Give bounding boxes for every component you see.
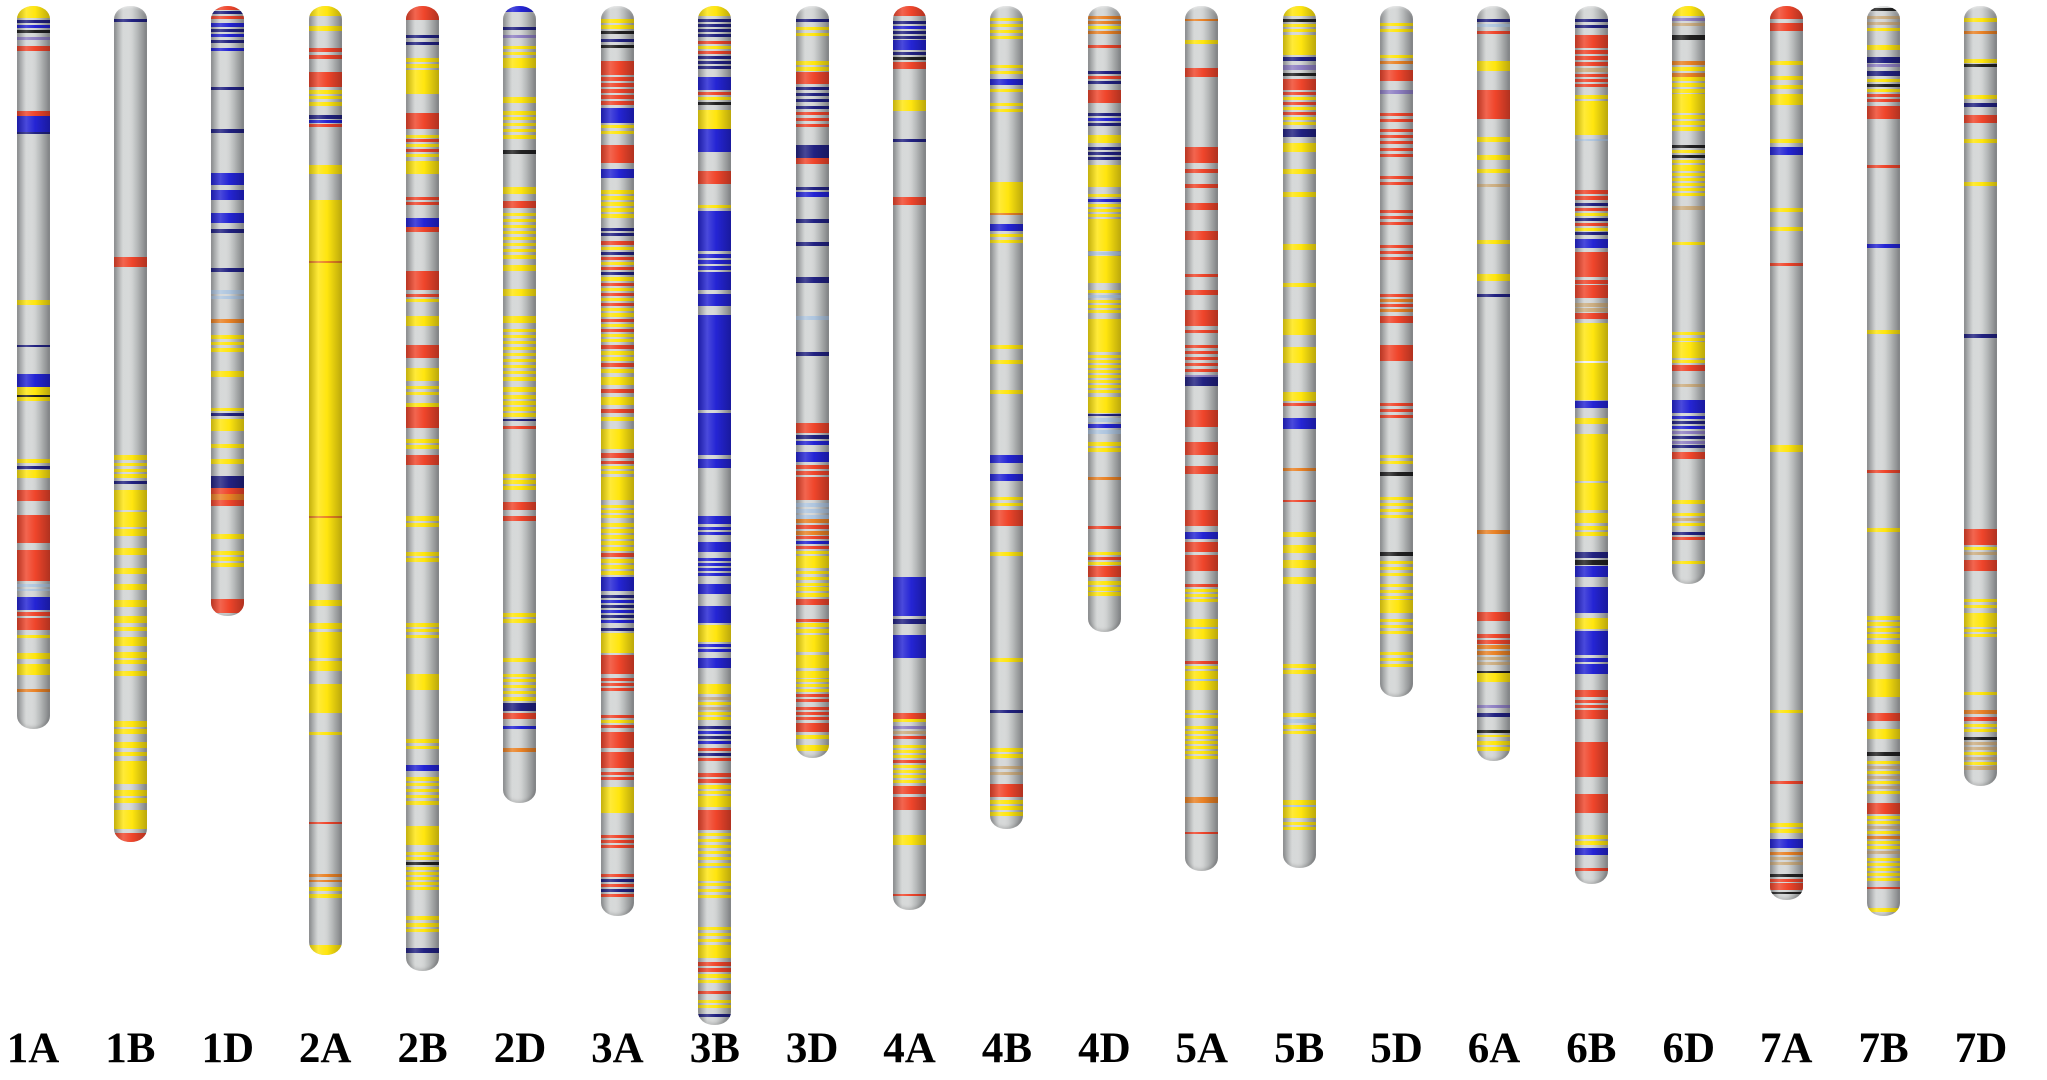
band-b bbox=[1672, 426, 1705, 429]
band-y bbox=[406, 368, 439, 381]
band-y bbox=[698, 933, 731, 936]
band-b bbox=[1867, 244, 1900, 248]
band-r bbox=[796, 699, 829, 702]
chromosome-label-3B: 3B bbox=[666, 1027, 763, 1070]
chromosome-column-6A: 6A bbox=[1445, 0, 1542, 1080]
band-b bbox=[698, 558, 731, 561]
band-y bbox=[1575, 228, 1608, 231]
band-n bbox=[796, 106, 829, 109]
band-y bbox=[698, 712, 731, 715]
band-n bbox=[601, 615, 634, 618]
band-o bbox=[1477, 645, 1510, 649]
band-b bbox=[1770, 147, 1803, 155]
band-t bbox=[990, 772, 1023, 775]
band-y bbox=[17, 653, 50, 659]
band-r bbox=[1185, 184, 1218, 188]
band-y bbox=[1575, 618, 1608, 629]
band-y bbox=[211, 335, 244, 339]
chromosome-5A bbox=[1185, 6, 1218, 871]
band-r bbox=[503, 502, 536, 510]
band-y bbox=[698, 46, 731, 49]
band-y bbox=[503, 111, 536, 115]
band-b bbox=[1575, 848, 1608, 855]
band-y bbox=[503, 413, 536, 417]
band-t bbox=[698, 707, 731, 710]
band-y bbox=[406, 826, 439, 845]
band-p bbox=[1672, 431, 1705, 434]
band-y bbox=[601, 339, 634, 342]
chromosome-shading bbox=[114, 6, 147, 842]
band-b bbox=[211, 48, 244, 51]
band-y bbox=[1283, 664, 1316, 668]
band-n bbox=[796, 352, 829, 356]
band-t bbox=[1964, 747, 1997, 750]
band-t bbox=[1575, 303, 1608, 307]
band-b bbox=[796, 441, 829, 445]
band-n bbox=[796, 435, 829, 439]
band-r bbox=[601, 688, 634, 691]
band-y bbox=[1088, 365, 1121, 368]
band-y bbox=[114, 600, 147, 607]
band-t bbox=[1672, 206, 1705, 210]
band-c bbox=[698, 866, 731, 868]
band-y bbox=[1672, 523, 1705, 526]
band-y bbox=[1867, 79, 1900, 82]
band-c bbox=[1088, 252, 1121, 255]
band-y bbox=[1185, 40, 1218, 44]
band-t bbox=[1964, 757, 1997, 760]
band-y bbox=[211, 342, 244, 345]
band-b bbox=[893, 577, 926, 616]
band-y bbox=[1088, 319, 1121, 352]
band-y bbox=[1088, 310, 1121, 313]
band-b bbox=[211, 34, 244, 37]
band-t bbox=[1867, 776, 1900, 779]
band-y bbox=[503, 387, 536, 392]
band-r bbox=[698, 758, 731, 761]
band-n bbox=[309, 115, 342, 119]
band-r bbox=[601, 732, 634, 748]
band-y bbox=[309, 90, 342, 94]
band-y bbox=[406, 887, 439, 890]
band-r bbox=[601, 840, 634, 843]
band-b bbox=[893, 635, 926, 658]
band-y bbox=[1088, 581, 1121, 585]
band-k bbox=[893, 57, 926, 60]
band-r bbox=[601, 145, 634, 163]
band-y bbox=[1575, 434, 1608, 481]
band-y bbox=[698, 6, 731, 16]
band-y bbox=[1185, 594, 1218, 597]
band-n bbox=[1672, 436, 1705, 439]
band-y bbox=[17, 300, 50, 305]
band-r bbox=[114, 833, 147, 842]
band-n bbox=[1088, 147, 1121, 150]
band-c bbox=[211, 290, 244, 294]
band-b bbox=[17, 374, 50, 387]
band-n bbox=[601, 39, 634, 42]
band-b bbox=[893, 40, 926, 50]
chromosome-3A bbox=[601, 6, 634, 916]
band-y bbox=[503, 249, 536, 252]
band-r bbox=[796, 546, 829, 549]
band-r bbox=[1088, 566, 1121, 577]
band-y bbox=[406, 445, 439, 449]
band-t bbox=[1477, 662, 1510, 665]
band-r bbox=[1185, 231, 1218, 240]
band-r bbox=[1185, 345, 1218, 348]
band-t bbox=[1672, 384, 1705, 387]
chromosome-label-1A: 1A bbox=[0, 1027, 82, 1070]
band-t bbox=[1867, 786, 1900, 789]
band-c bbox=[796, 503, 829, 507]
band-r bbox=[601, 89, 634, 93]
band-p bbox=[1867, 64, 1900, 67]
band-k bbox=[1672, 155, 1705, 158]
band-b bbox=[211, 173, 244, 185]
band-y bbox=[114, 455, 147, 460]
band-y bbox=[406, 392, 439, 395]
band-r bbox=[601, 835, 634, 838]
band-r bbox=[893, 786, 926, 794]
band-y bbox=[503, 255, 536, 259]
band-r bbox=[796, 619, 829, 622]
band-n bbox=[1185, 377, 1218, 386]
band-r bbox=[796, 465, 829, 469]
band-r bbox=[406, 139, 439, 142]
chromosome-1A bbox=[17, 6, 50, 729]
band-c bbox=[1185, 627, 1218, 629]
band-y bbox=[406, 64, 439, 68]
band-n bbox=[698, 66, 731, 69]
band-y bbox=[309, 732, 342, 735]
band-r bbox=[601, 725, 634, 728]
band-r bbox=[1380, 245, 1413, 248]
band-y bbox=[406, 154, 439, 157]
band-y bbox=[601, 298, 634, 301]
band-k bbox=[1672, 145, 1705, 148]
chromosome-label-2B: 2B bbox=[374, 1027, 471, 1070]
band-r bbox=[1185, 169, 1218, 173]
band-r bbox=[1088, 557, 1121, 560]
band-r bbox=[698, 779, 731, 783]
chromosome-label-4D: 4D bbox=[1056, 1027, 1153, 1070]
chromosome-label-7A: 7A bbox=[1738, 1027, 1835, 1070]
band-r bbox=[1575, 252, 1608, 277]
band-y bbox=[1672, 338, 1705, 341]
band-y bbox=[601, 196, 634, 200]
band-y bbox=[1867, 634, 1900, 638]
band-n bbox=[1088, 123, 1121, 126]
chromosome-column-4D: 4D bbox=[1056, 0, 1153, 1080]
band-b bbox=[698, 516, 731, 524]
band-r bbox=[893, 760, 926, 763]
chromosome-label-4B: 4B bbox=[958, 1027, 1055, 1070]
band-y bbox=[503, 329, 536, 332]
band-y bbox=[406, 58, 439, 62]
band-y bbox=[17, 459, 50, 463]
band-n bbox=[601, 879, 634, 882]
band-y bbox=[1380, 619, 1413, 622]
band-y bbox=[406, 135, 439, 138]
band-r bbox=[1283, 92, 1316, 95]
band-y bbox=[503, 365, 536, 368]
band-y bbox=[1964, 605, 1997, 608]
band-n bbox=[698, 19, 731, 22]
band-y bbox=[503, 341, 536, 344]
band-y bbox=[698, 796, 731, 807]
band-y bbox=[211, 551, 244, 555]
band-y bbox=[893, 100, 926, 111]
band-y bbox=[1380, 561, 1413, 564]
band-r bbox=[1575, 868, 1608, 871]
band-n bbox=[1672, 445, 1705, 448]
band-y bbox=[990, 36, 1023, 39]
band-k bbox=[601, 45, 634, 48]
band-y bbox=[1185, 736, 1218, 739]
band-y bbox=[406, 739, 439, 743]
band-r bbox=[1380, 182, 1413, 185]
band-y bbox=[503, 117, 536, 120]
band-y bbox=[601, 477, 634, 500]
band-r bbox=[1380, 294, 1413, 297]
band-o bbox=[1380, 309, 1413, 312]
band-n bbox=[211, 129, 244, 133]
band-y bbox=[114, 798, 147, 803]
band-r bbox=[601, 345, 634, 349]
band-y bbox=[1477, 673, 1510, 682]
band-y bbox=[1575, 841, 1608, 845]
band-y bbox=[1867, 791, 1900, 794]
band-r bbox=[698, 748, 731, 751]
band-y bbox=[1088, 135, 1121, 143]
band-y bbox=[1380, 503, 1413, 506]
band-y bbox=[1185, 731, 1218, 734]
band-n bbox=[601, 605, 634, 608]
band-y bbox=[1380, 497, 1413, 500]
band-y bbox=[796, 655, 829, 668]
band-y bbox=[1672, 183, 1705, 186]
band-n bbox=[796, 242, 829, 246]
band-n bbox=[17, 132, 50, 134]
band-r bbox=[1867, 803, 1900, 814]
band-n bbox=[893, 36, 926, 39]
band-p bbox=[503, 35, 536, 38]
band-b bbox=[698, 532, 731, 535]
band-r bbox=[1672, 452, 1705, 459]
band-r bbox=[1088, 526, 1121, 529]
band-y bbox=[990, 30, 1023, 33]
band-y bbox=[1088, 587, 1121, 591]
band-r bbox=[1185, 410, 1218, 427]
band-b bbox=[1088, 199, 1121, 202]
chromosome-column-3A: 3A bbox=[569, 0, 666, 1080]
band-b bbox=[601, 620, 634, 623]
band-o bbox=[1867, 836, 1900, 839]
band-y bbox=[1867, 729, 1900, 739]
band-y bbox=[1380, 515, 1413, 518]
band-r bbox=[796, 707, 829, 710]
band-y bbox=[1185, 599, 1218, 602]
band-r bbox=[17, 490, 50, 501]
band-t bbox=[1964, 742, 1997, 745]
chromosome-label-2A: 2A bbox=[277, 1027, 374, 1070]
band-y bbox=[114, 652, 147, 658]
band-r bbox=[796, 72, 829, 84]
band-b bbox=[698, 315, 731, 410]
chromosome-column-7B: 7B bbox=[1835, 0, 1932, 1080]
band-y bbox=[1672, 342, 1705, 358]
band-r bbox=[1380, 70, 1413, 81]
band-y bbox=[698, 785, 731, 789]
band-r bbox=[893, 797, 926, 810]
band-b bbox=[17, 597, 50, 610]
band-r bbox=[601, 845, 634, 848]
band-w bbox=[1575, 361, 1608, 363]
band-y bbox=[1964, 18, 1997, 22]
band-y bbox=[796, 583, 829, 586]
band-b bbox=[17, 25, 50, 28]
band-y bbox=[1185, 710, 1218, 713]
band-r bbox=[1380, 345, 1413, 361]
band-r bbox=[1185, 442, 1218, 455]
band-b bbox=[698, 542, 731, 552]
band-y bbox=[406, 916, 439, 920]
band-r bbox=[796, 124, 829, 127]
band-b bbox=[990, 79, 1023, 85]
band-c bbox=[17, 589, 50, 591]
band-n bbox=[893, 21, 926, 24]
band-y bbox=[796, 61, 829, 65]
band-b bbox=[698, 272, 731, 290]
band-r bbox=[1575, 50, 1608, 54]
band-y bbox=[406, 299, 439, 302]
band-r bbox=[1185, 542, 1218, 552]
band-y bbox=[1088, 209, 1121, 212]
band-b bbox=[503, 6, 536, 12]
band-n bbox=[17, 345, 50, 347]
band-r bbox=[601, 95, 634, 99]
band-r bbox=[698, 968, 731, 972]
band-y bbox=[1380, 596, 1413, 599]
band-y bbox=[503, 123, 536, 126]
band-r bbox=[1477, 640, 1510, 644]
band-r bbox=[406, 197, 439, 200]
band-y bbox=[406, 635, 439, 638]
band-y bbox=[1964, 729, 1997, 732]
band-y bbox=[406, 623, 439, 627]
band-r bbox=[698, 991, 731, 994]
chromosome-6A bbox=[1477, 6, 1510, 761]
band-y bbox=[1283, 117, 1316, 120]
band-r bbox=[601, 319, 634, 322]
band-r bbox=[601, 241, 634, 245]
band-y bbox=[893, 745, 926, 748]
band-o bbox=[1185, 797, 1218, 803]
band-r bbox=[1380, 135, 1413, 138]
band-o bbox=[1964, 31, 1997, 34]
band-y bbox=[601, 429, 634, 449]
band-r bbox=[1867, 887, 1900, 889]
band-n bbox=[1867, 57, 1900, 63]
band-y bbox=[601, 324, 634, 327]
band-r bbox=[601, 257, 634, 260]
band-k bbox=[1964, 737, 1997, 740]
band-y bbox=[1964, 634, 1997, 637]
band-r bbox=[1575, 289, 1608, 298]
band-y bbox=[1283, 725, 1316, 729]
band-n bbox=[1283, 129, 1316, 137]
chromosome-column-1B: 1B bbox=[82, 0, 179, 1080]
band-y bbox=[1964, 139, 1997, 143]
band-y bbox=[1283, 24, 1316, 27]
band-y bbox=[990, 658, 1023, 662]
band-r bbox=[406, 113, 439, 129]
band-n bbox=[1283, 57, 1316, 61]
band-y bbox=[1477, 741, 1510, 745]
band-y bbox=[1185, 715, 1218, 718]
band-y bbox=[1283, 822, 1316, 825]
chromosome-label-3A: 3A bbox=[569, 1027, 666, 1070]
band-n bbox=[1575, 19, 1608, 22]
band-b bbox=[698, 584, 731, 594]
band-y bbox=[1672, 89, 1705, 93]
band-r bbox=[796, 525, 829, 529]
band-y bbox=[114, 761, 147, 784]
band-y bbox=[1867, 831, 1900, 834]
band-r bbox=[1477, 31, 1510, 34]
band-r bbox=[601, 77, 634, 81]
band-r bbox=[1380, 141, 1413, 144]
band-b bbox=[698, 527, 731, 530]
band-r bbox=[1185, 147, 1218, 163]
band-y bbox=[503, 377, 536, 381]
band-y bbox=[1867, 622, 1900, 626]
band-r bbox=[1283, 102, 1316, 105]
band-y bbox=[1088, 592, 1121, 596]
band-k bbox=[17, 395, 50, 397]
band-r bbox=[503, 201, 536, 208]
band-y bbox=[990, 503, 1023, 506]
band-y bbox=[309, 6, 342, 16]
band-r bbox=[698, 171, 731, 184]
band-y bbox=[601, 277, 634, 281]
band-y bbox=[114, 660, 147, 664]
band-y bbox=[1380, 625, 1413, 628]
band-y bbox=[796, 577, 829, 580]
band-r bbox=[990, 510, 1023, 526]
chromosome-3B bbox=[698, 6, 731, 1025]
band-y bbox=[1867, 878, 1900, 881]
chromosome-2B bbox=[406, 6, 439, 971]
band-t bbox=[1867, 826, 1900, 829]
band-y bbox=[1867, 89, 1900, 92]
band-o bbox=[1088, 477, 1121, 480]
band-r bbox=[601, 874, 634, 877]
band-y bbox=[601, 377, 634, 385]
band-t bbox=[990, 766, 1023, 769]
band-y bbox=[1964, 692, 1997, 695]
band-y bbox=[796, 684, 829, 687]
band-r bbox=[1185, 351, 1218, 354]
band-y bbox=[1964, 724, 1997, 727]
band-b bbox=[1575, 631, 1608, 655]
band-y bbox=[1867, 816, 1900, 819]
band-y bbox=[990, 497, 1023, 500]
band-b bbox=[1575, 668, 1608, 674]
band-y bbox=[1283, 560, 1316, 568]
band-n bbox=[893, 619, 926, 624]
